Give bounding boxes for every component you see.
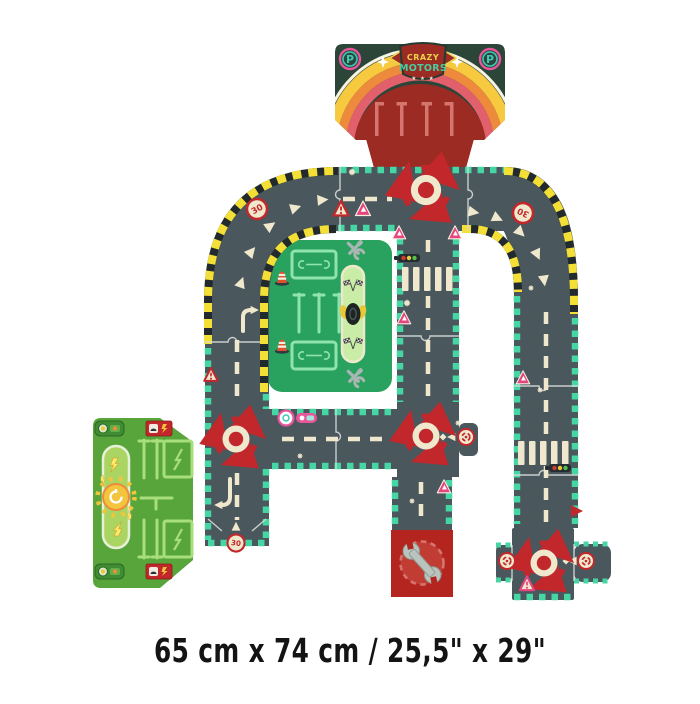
pink-circle-sign [279, 411, 294, 426]
logo-line1: CRAZY [407, 53, 439, 62]
logo-line2: MOTORS [399, 63, 447, 74]
pit-lane [338, 266, 367, 362]
playmat-scene: CRAZY MOTORS ★ ★ ★ P P [0, 0, 700, 700]
charger-machine [95, 421, 124, 436]
svg-text:30: 30 [230, 538, 241, 548]
charger-machine [95, 564, 124, 579]
product-image: CRAZY MOTORS ★ ★ ★ P P [0, 0, 700, 700]
garage-driveway [366, 139, 474, 168]
charger-sign [146, 564, 172, 579]
svg-text:P: P [486, 53, 494, 66]
pit-stop-area [268, 239, 392, 392]
repair-piece [391, 530, 453, 597]
charging-station-area [93, 418, 193, 588]
garage-building: CRAZY MOTORS ★ ★ ★ P P [324, 43, 517, 168]
roundabout-mini-sign [458, 429, 474, 445]
roundabout-mini-sign [499, 553, 515, 569]
gas-sign [296, 413, 317, 423]
roundabout-mini-sign [578, 553, 594, 569]
logo-stars: ★ ★ ★ [411, 76, 434, 82]
speed-sign-30-bottom: 30 [226, 533, 245, 552]
parking-sign-left: P [340, 49, 360, 69]
charger-sign [146, 421, 172, 436]
dimensions-caption: 65 cm x 74 cm / 25,5" x 29" [154, 631, 546, 670]
parking-sign-right: P [480, 49, 500, 69]
svg-text:P: P [346, 53, 354, 66]
